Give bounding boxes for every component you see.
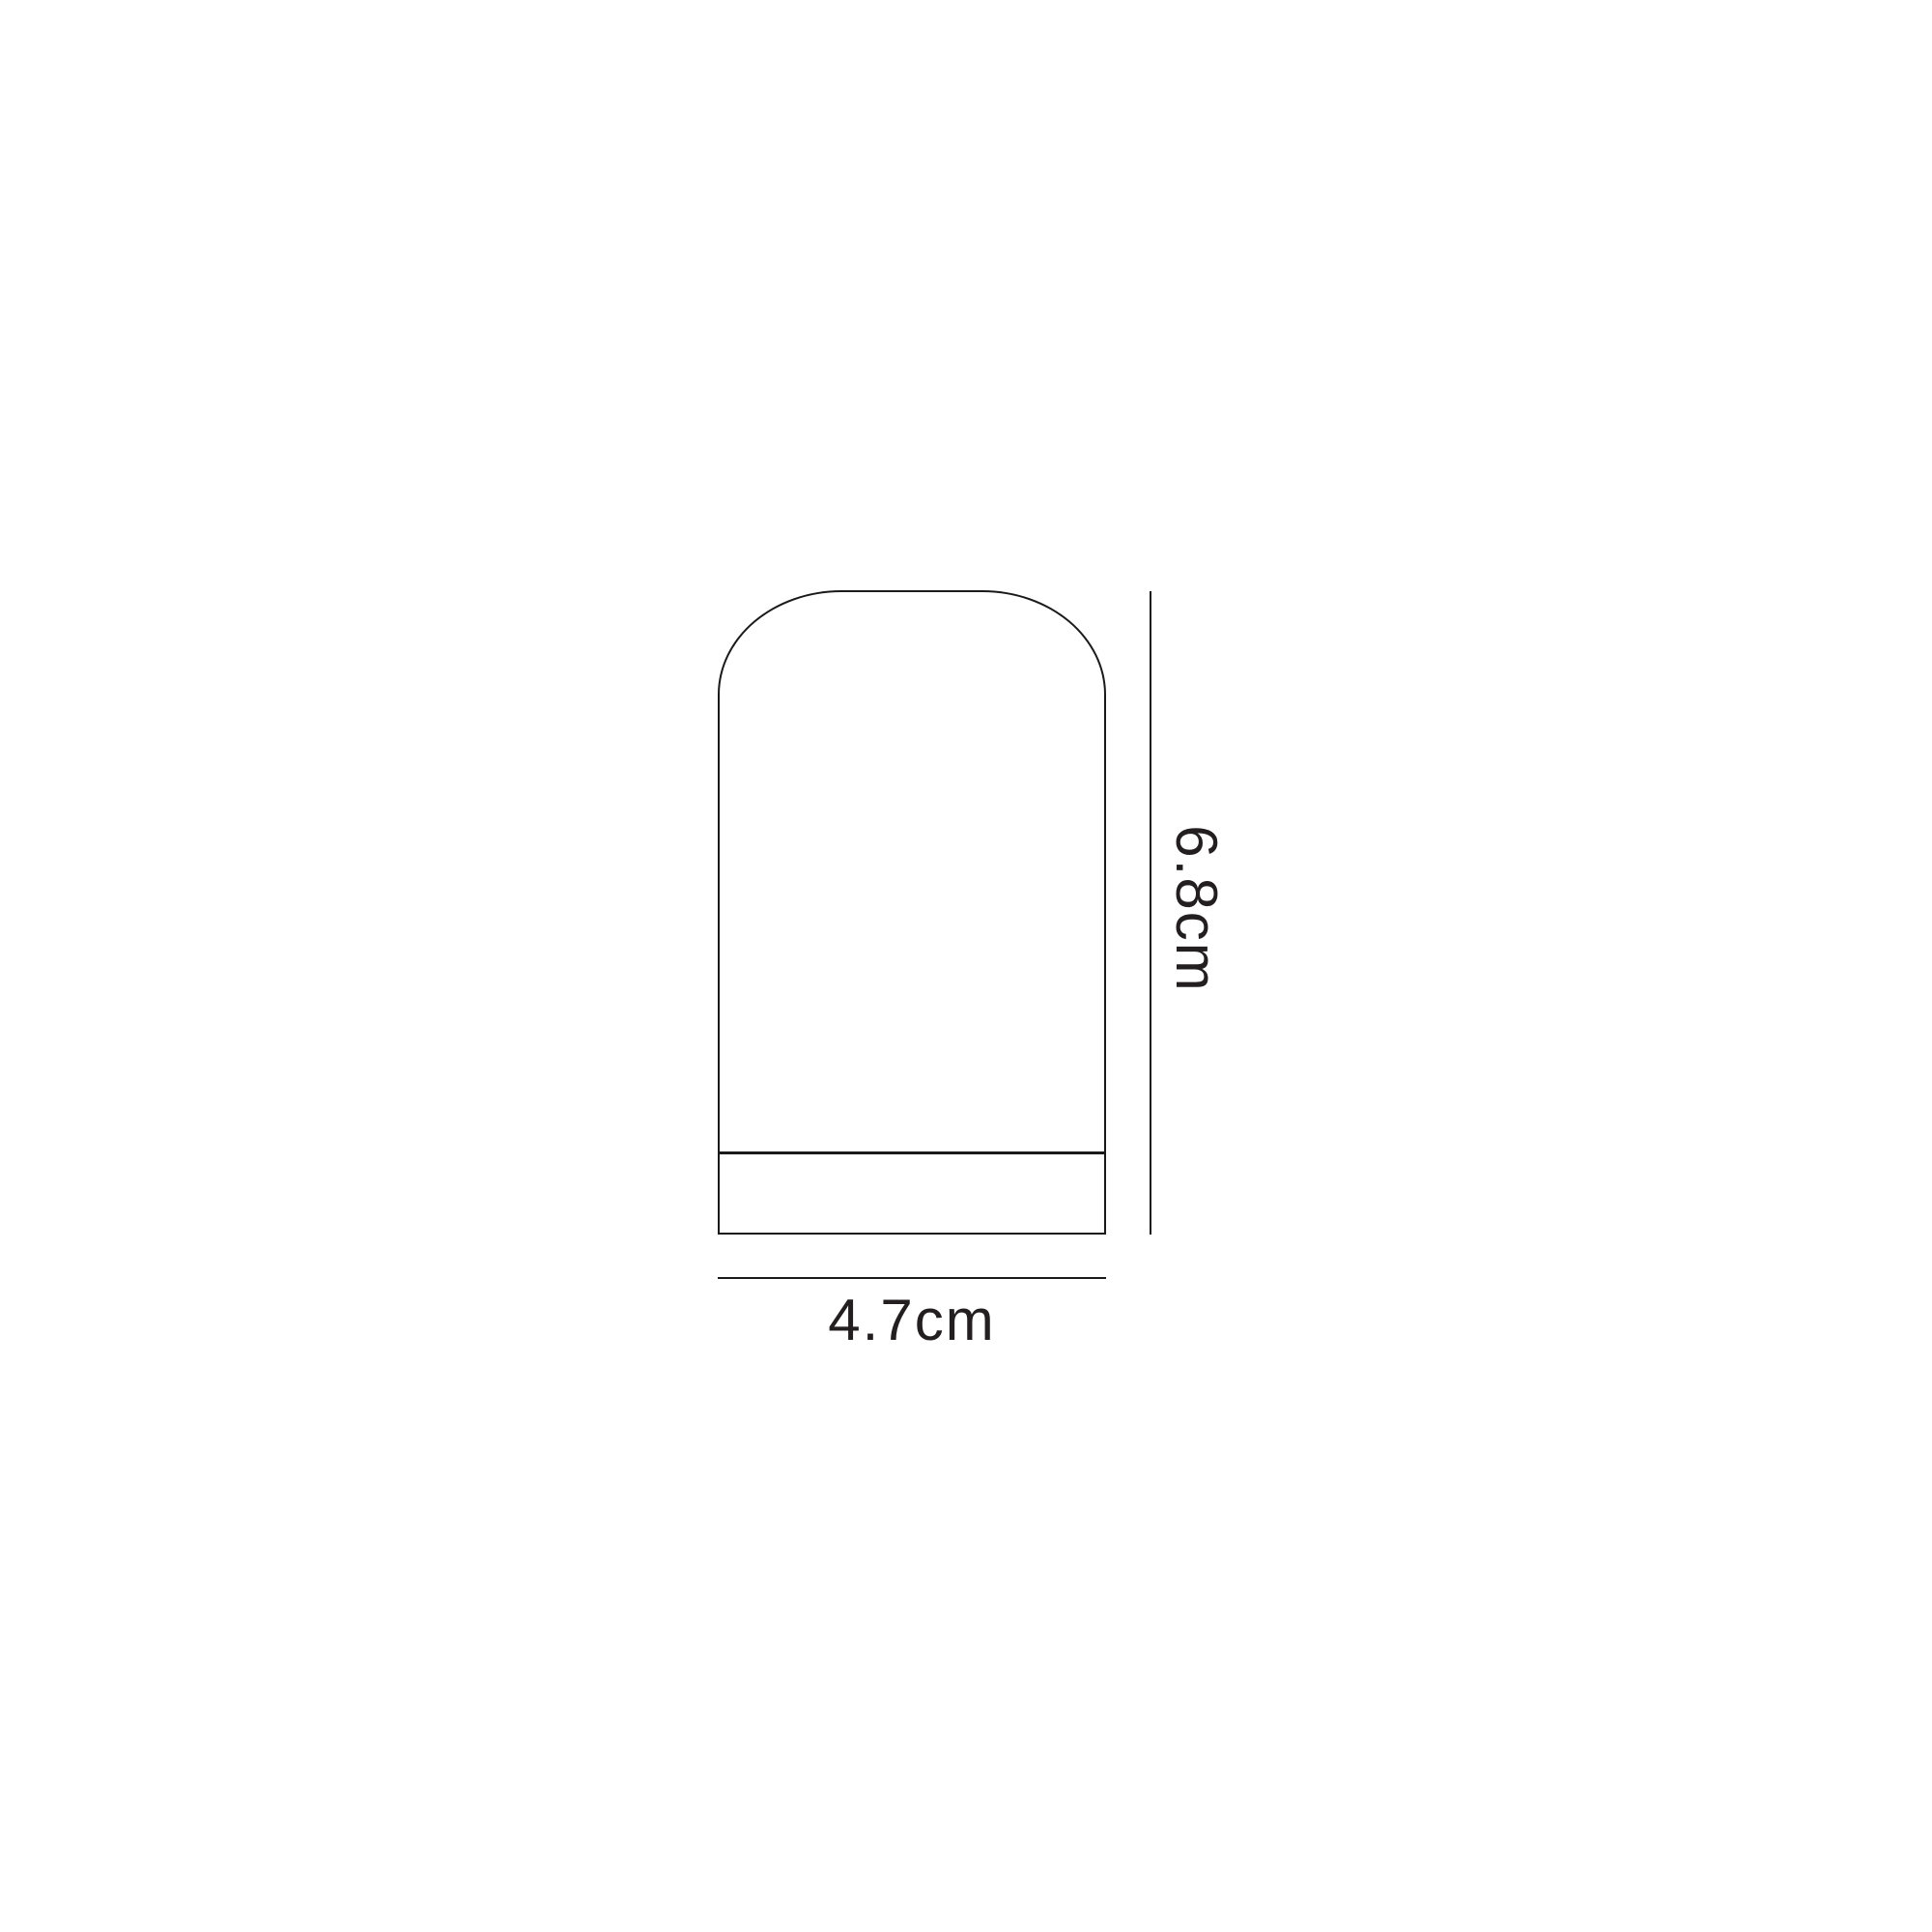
width-dimension-label: 4.7cm xyxy=(828,1292,995,1350)
height-dimension-line xyxy=(1150,591,1151,1235)
shade-outline-shape xyxy=(718,590,1106,1235)
shade-base-divider-line xyxy=(718,1151,1106,1154)
width-dimension-line xyxy=(718,1277,1106,1279)
height-dimension-label: 6.8cm xyxy=(1167,825,1225,992)
diagram-canvas: 6.8cm 4.7cm xyxy=(0,0,1932,1932)
